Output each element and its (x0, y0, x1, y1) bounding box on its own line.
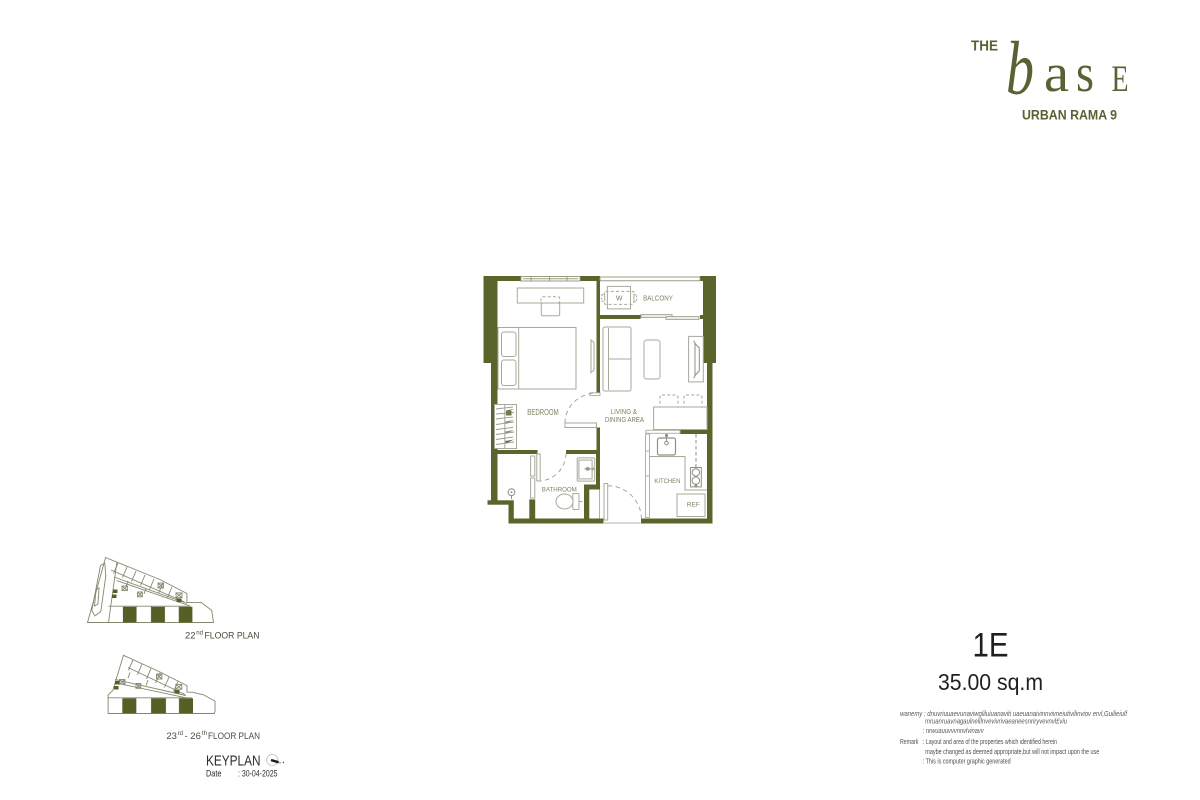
svg-text:URBAN RAMA 9: URBAN RAMA 9 (1022, 108, 1117, 123)
svg-text:REF: REF (687, 502, 700, 509)
svg-text:rd: rd (178, 731, 183, 737)
svg-text:Remark : Layout and area of: Remark : Layout and area of the properti… (900, 737, 1057, 746)
svg-text:- 26: - 26 (185, 731, 201, 742)
svg-text:th: th (202, 731, 207, 737)
svg-text:KITCHEN: KITCHEN (654, 478, 680, 485)
svg-text:FLOOR PLAN: FLOOR PLAN (208, 731, 260, 742)
svg-text:DINING AREA: DINING AREA (605, 417, 644, 424)
svg-text:s: s (1076, 43, 1094, 103)
svg-text:BALCONY: BALCONY (643, 294, 673, 303)
svg-text:mruanruavnagaulnelilnvevivriva: mruanruavnagaulnelilnvevivrivaeaneesnrir… (925, 717, 1067, 726)
svg-text:b: b (1006, 27, 1034, 111)
svg-text:a: a (1044, 43, 1069, 103)
svg-text:nd: nd (196, 631, 203, 637)
svg-text:BEDROOM: BEDROOM (527, 408, 559, 417)
svg-text:35.00 sq.m: 35.00 sq.m (938, 669, 1043, 695)
svg-text:: 30-04-2025: : 30-04-2025 (238, 769, 278, 779)
svg-text:LIVING &: LIVING & (611, 409, 638, 416)
svg-text:23: 23 (166, 731, 177, 742)
svg-text:: This is computer graphic gen: : This is computer graphic generated (923, 757, 1011, 766)
svg-text:Date: Date (206, 769, 222, 779)
svg-text:KEYPLAN: KEYPLAN (206, 754, 261, 770)
svg-text:: nrwuauuvvvnnvlvinavv: : nrwuauuvvvnnvlvinavv (923, 726, 984, 735)
svg-text:BATHROOM: BATHROOM (542, 487, 577, 494)
svg-text:1E: 1E (973, 627, 1009, 665)
svg-text:maybe changed as deemed approp: maybe changed as deemed appropriate,but … (925, 747, 1099, 756)
svg-text:FLOOR PLAN: FLOOR PLAN (205, 631, 260, 642)
svg-text:E: E (1112, 59, 1129, 100)
svg-text:W: W (616, 295, 623, 302)
svg-text:22: 22 (185, 631, 196, 642)
svg-text:THE: THE (971, 39, 998, 55)
